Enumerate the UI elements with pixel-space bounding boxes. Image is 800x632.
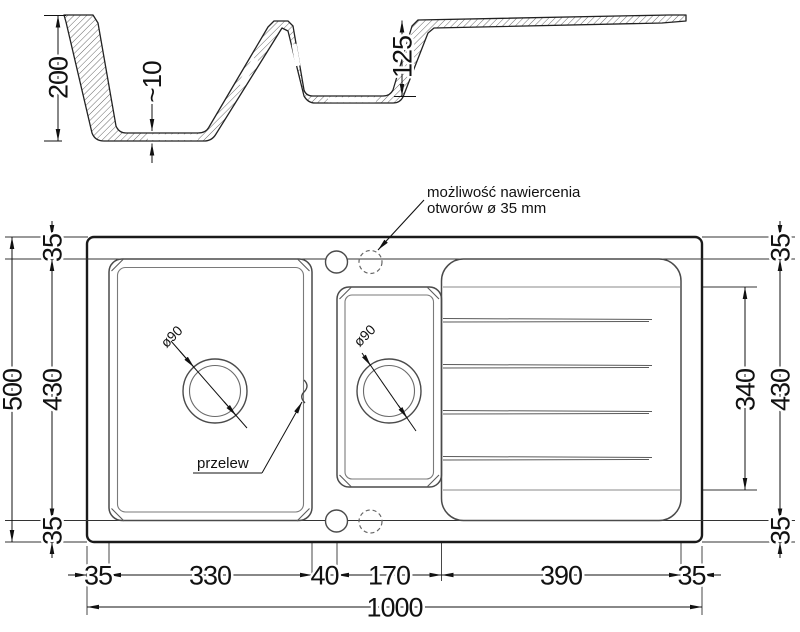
section-view: 200 ~10 125 bbox=[43, 15, 686, 163]
sink-spec-drawing: 200 ~10 125 bbox=[0, 0, 800, 632]
dim-gap-width: 40 bbox=[310, 560, 338, 590]
sink-outline bbox=[87, 237, 702, 542]
dim-bottom-margin-left: 35 bbox=[84, 560, 112, 590]
plan-view: możliwość nawiercenia otworów ø 35 mm pr… bbox=[0, 184, 795, 622]
drill-note-line2: otworów ø 35 mm bbox=[427, 200, 546, 217]
overflow-channel-break-2 bbox=[292, 44, 301, 67]
dim-left-inner-height: 430 bbox=[37, 369, 67, 411]
dim-right-margin-top: 35 bbox=[765, 234, 795, 262]
dim-drainer-width: 390 bbox=[540, 560, 582, 590]
dim-small-bowl-width: 170 bbox=[368, 560, 410, 590]
dim-right-inner-height: 430 bbox=[765, 369, 795, 411]
small-drain-recess bbox=[328, 97, 376, 102]
dim-total-height: 500 bbox=[0, 369, 27, 411]
small-bowl-depth-value: 125 bbox=[387, 36, 417, 78]
tap-hole-top bbox=[326, 251, 348, 273]
dim-left-margin-top: 35 bbox=[37, 234, 67, 262]
bottom-thickness-value: ~10 bbox=[137, 61, 167, 103]
dim-drainer-height: 340 bbox=[730, 369, 760, 411]
overflow-label: przelew bbox=[197, 455, 249, 472]
dim-left-margin-bottom: 35 bbox=[37, 517, 67, 545]
main-drain-recess bbox=[148, 134, 198, 140]
technical-drawing-canvas: 200 ~10 125 bbox=[0, 0, 800, 632]
drill-note-line1: możliwość nawiercenia bbox=[427, 184, 581, 201]
section-depth-value: 200 bbox=[43, 57, 73, 99]
dim-total-width: 1000 bbox=[366, 592, 422, 622]
dim-bottom-margin-right: 35 bbox=[677, 560, 705, 590]
dim-main-bowl-width: 330 bbox=[189, 560, 231, 590]
tap-hole-bottom bbox=[326, 510, 348, 532]
dim-right-margin-bottom: 35 bbox=[765, 517, 795, 545]
